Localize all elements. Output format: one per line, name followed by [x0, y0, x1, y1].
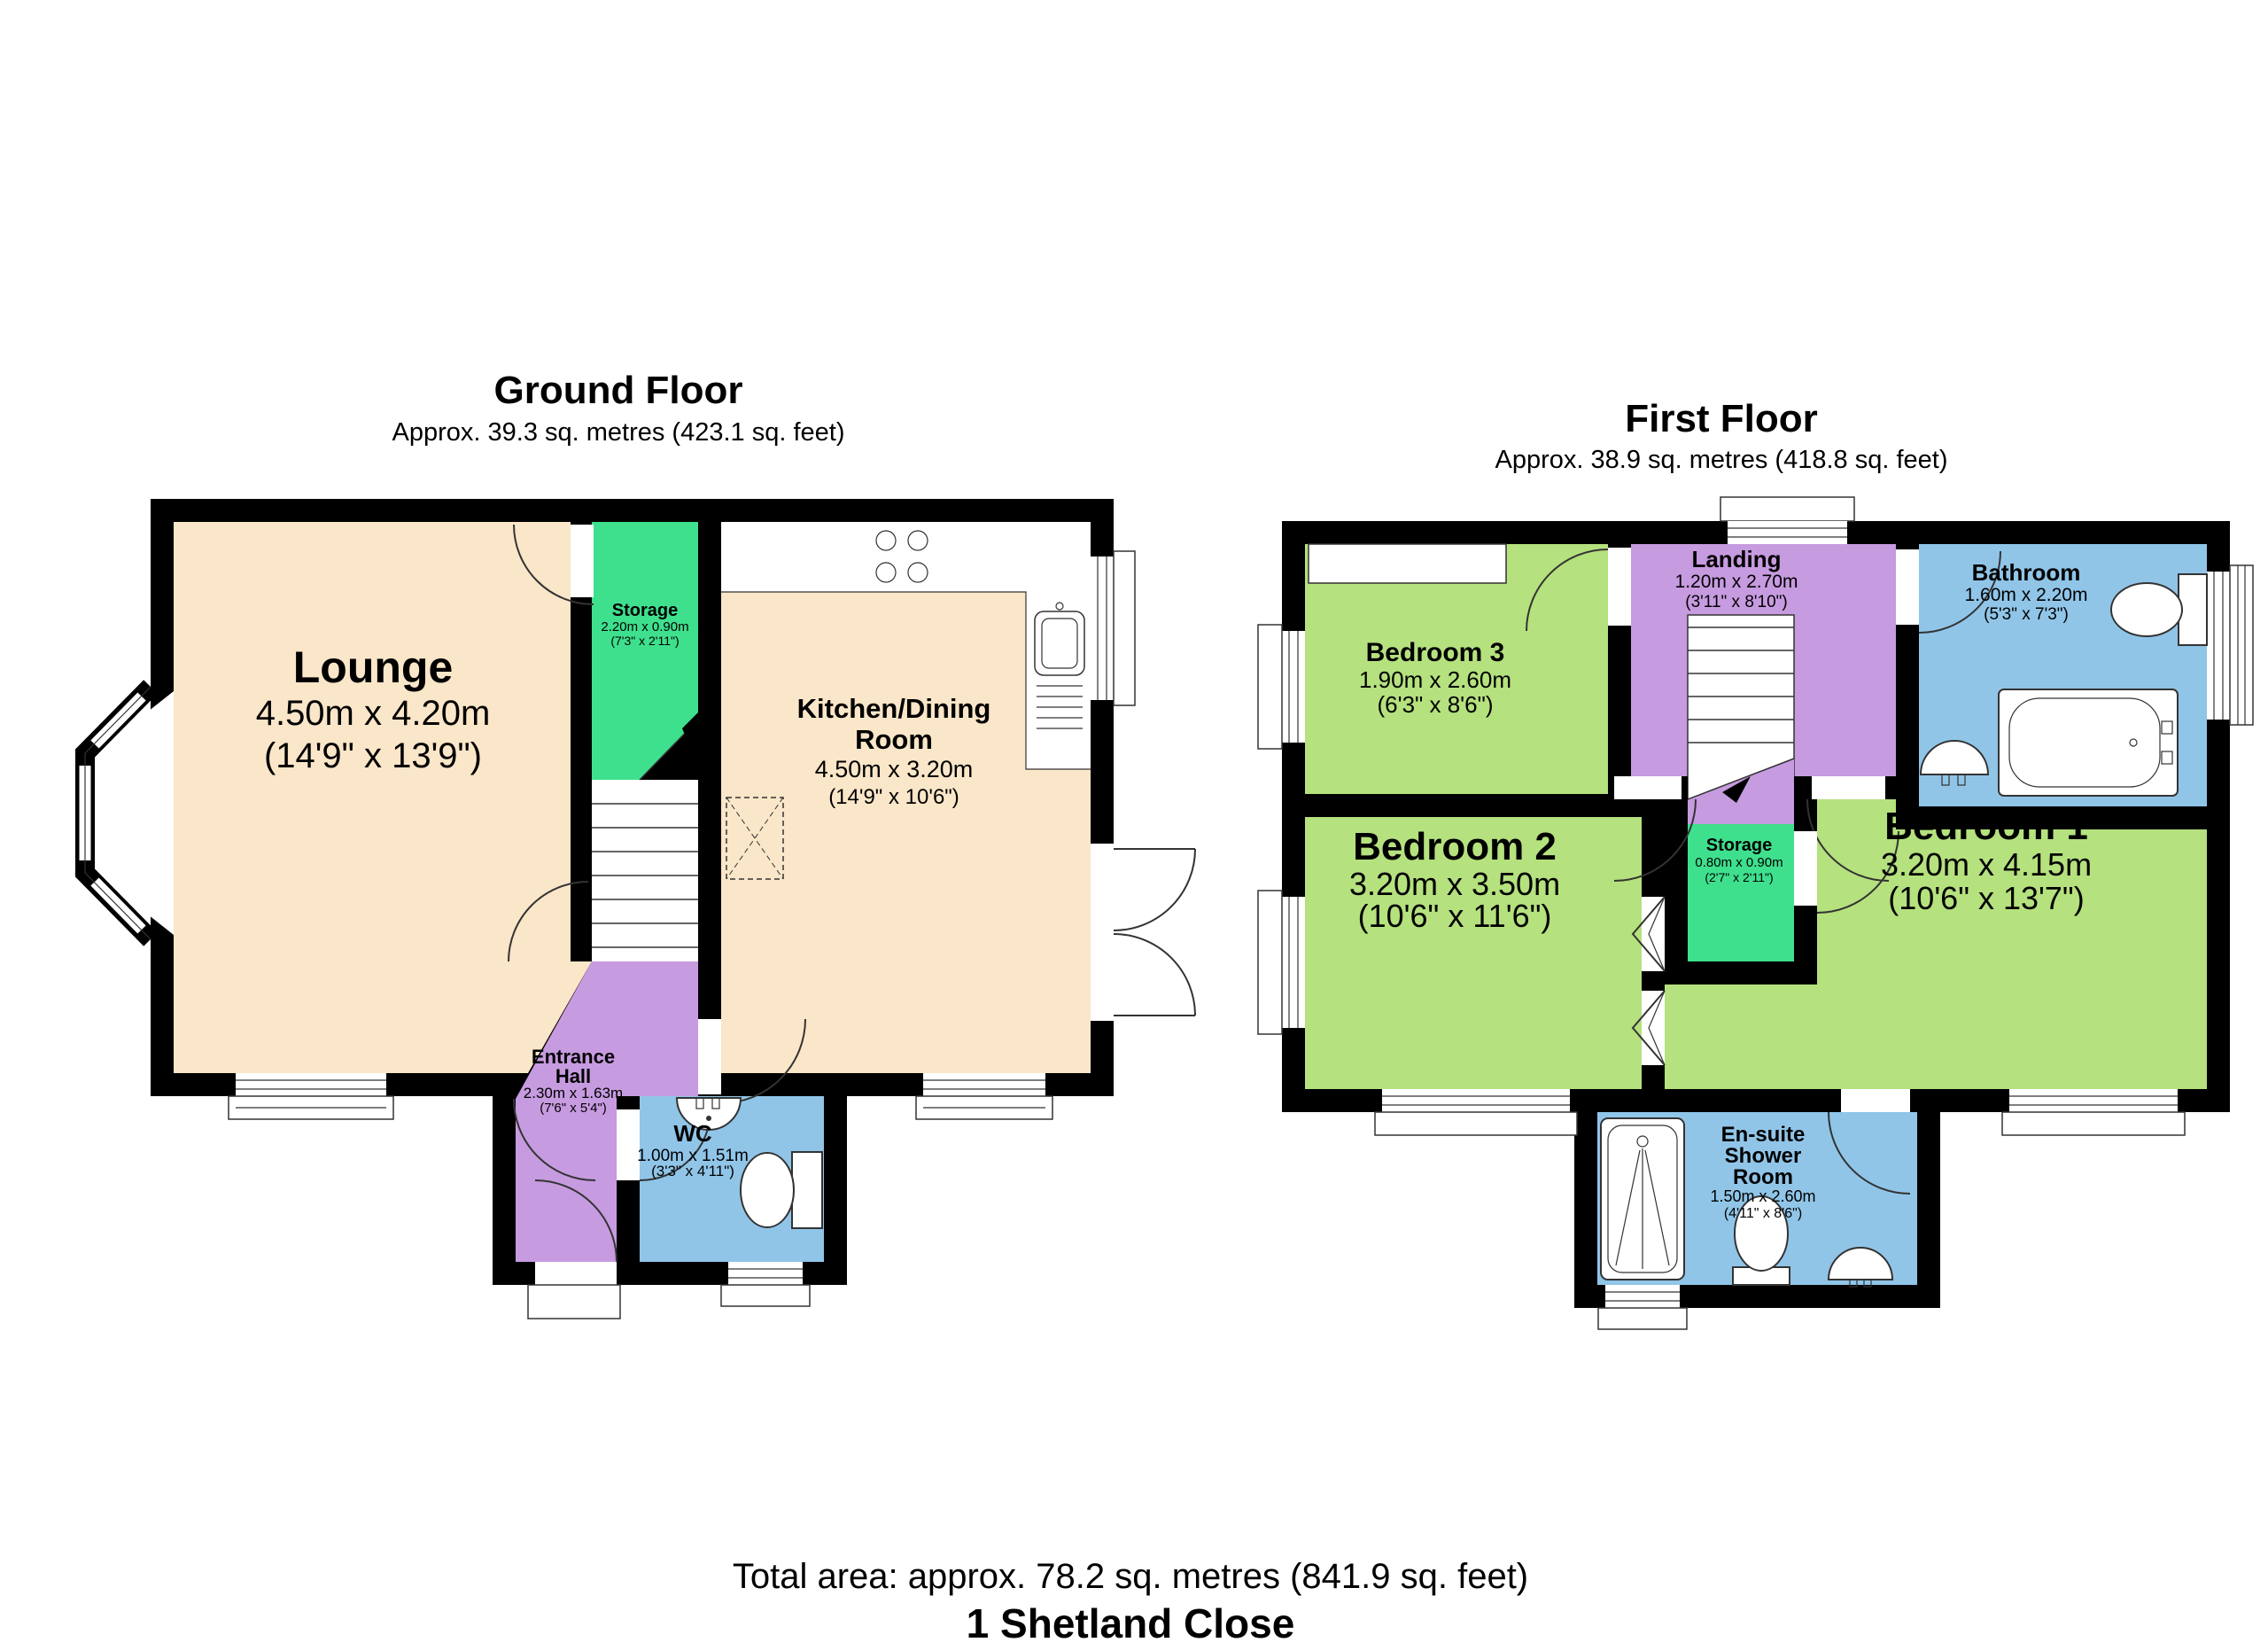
lounge-room [174, 522, 592, 1073]
room-dims-ft: (5'3" x 7'3") [1984, 605, 2069, 624]
room-name: Bathroom [1972, 559, 2081, 586]
room-dims-ft: (3'3" x 4'11") [651, 1163, 734, 1179]
bay-window [85, 687, 174, 939]
shower-icon [1601, 1118, 1684, 1280]
room-dims-ft: (3'11" x 8'10") [1685, 593, 1787, 611]
window [1720, 497, 1854, 544]
address-text: 1 Shetland Close [967, 1600, 1295, 1646]
window [2002, 1089, 2185, 1135]
ground-floor-header: Ground Floor Approx. 39.3 sq. metres (42… [392, 369, 845, 447]
room-name: Shower [1725, 1144, 1802, 1168]
ground-floor-plan: Lounge 4.50m x 4.20m (14'9" x 13'9") Sto… [85, 499, 1195, 1319]
first-floor-title: First Floor [1625, 397, 1818, 440]
window [1375, 1089, 1577, 1135]
room-name: Room [855, 724, 933, 755]
ff-stairs [1688, 615, 1794, 824]
door-gap [1614, 776, 1682, 799]
room-dims-m: 3.20m x 4.15m [1881, 846, 2092, 883]
room-dims-ft: (4'11" x 8'6") [1724, 1206, 1802, 1221]
gf-storage-label: Storage 2.20m x 0.90m (7'3" x 2'11") [601, 601, 688, 648]
window [2207, 565, 2253, 725]
door-gap [617, 1109, 640, 1180]
ff-storage-label: Storage 0.80m x 0.90m (2'7" x 2'11") [1695, 836, 1783, 884]
total-area-text: Total area: approx. 78.2 sq. metres (841… [733, 1557, 1528, 1596]
window [1598, 1285, 1687, 1329]
room-dims-m: 2.20m x 0.90m [601, 619, 688, 634]
room-dims-m: 1.60m x 2.20m [1965, 585, 2088, 605]
window [1258, 625, 1305, 749]
room-dims-ft: (10'6" x 11'6") [1358, 898, 1552, 934]
room-name: WC [673, 1120, 712, 1147]
door-gap [1841, 1089, 1910, 1112]
room-dims-m: 1.20m x 2.70m [1675, 572, 1798, 592]
room-dims-ft: (7'6" x 5'4") [540, 1101, 607, 1116]
first-floor-header: First Floor Approx. 38.9 sq. metres (418… [1495, 397, 1948, 474]
room-name: Bedroom 2 [1353, 825, 1557, 868]
footer: Total area: approx. 78.2 sq. metres (841… [733, 1557, 1528, 1646]
room-dims-ft: (14'9" x 10'6") [828, 785, 959, 809]
floorplan-canvas: Ground Floor Approx. 39.3 sq. metres (42… [0, 0, 2268, 1650]
window [916, 1073, 1052, 1119]
room-dims-ft: (6'3" x 8'6") [1378, 691, 1494, 718]
room-dims-m: 3.20m x 3.50m [1349, 866, 1560, 902]
room-name: En-suite [1721, 1123, 1806, 1147]
ground-floor-subtitle: Approx. 39.3 sq. metres (423.1 sq. feet) [392, 418, 845, 447]
room-dims-ft: (7'3" x 2'11") [610, 634, 679, 648]
bedroom3-label: Bedroom 3 1.90m x 2.60m (6'3" x 8'6") [1359, 638, 1511, 718]
ground-floor-title: Ground Floor [493, 369, 742, 412]
window [1258, 891, 1305, 1034]
landing-label: Landing 1.20m x 2.70m (3'11" x 8'10") [1675, 546, 1798, 611]
room-name: Landing [1691, 546, 1781, 572]
room-dims-m: 1.50m x 2.60m [1710, 1187, 1815, 1205]
room-name: Bedroom 3 [1366, 638, 1505, 667]
bedroom1-label: Bedroom 1 3.20m x 4.15m (10'6" x 13'7") [1881, 805, 2092, 916]
room-dims-ft: (14'9" x 13'9") [264, 736, 482, 775]
room-name: Storage [1706, 836, 1772, 855]
window [1091, 551, 1135, 705]
room-dims-m: 1.90m x 2.60m [1359, 666, 1511, 693]
bath-icon [1999, 689, 2178, 796]
door-gap [1812, 776, 1885, 799]
bedroom2-label: Bedroom 2 3.20m x 3.50m (10'6" x 11'6") [1349, 825, 1560, 934]
front-step [528, 1285, 620, 1319]
door-gap [698, 1019, 721, 1094]
door-gap [1896, 549, 1919, 625]
room-dims-ft: (10'6" x 13'7") [1888, 880, 2084, 916]
room-dims-m: 0.80m x 0.90m [1695, 855, 1783, 870]
first-floor-plan: Bedroom 3 1.90m x 2.60m (6'3" x 8'6") La… [1258, 497, 2253, 1329]
window [721, 1262, 810, 1306]
room-name: Lounge [293, 642, 454, 692]
room-name: Bedroom 1 [1884, 805, 2088, 848]
door-gap [1608, 548, 1631, 626]
room-dims-m: 4.50m x 4.20m [256, 694, 491, 733]
room-name: Room [1733, 1165, 1793, 1189]
room-dims-m: 2.30m x 1.63m [524, 1085, 623, 1101]
door-gap [1794, 831, 1817, 906]
front-door-gap [535, 1262, 617, 1285]
door-gap [571, 525, 594, 597]
room-dims-m: 4.50m x 3.20m [815, 756, 974, 782]
french-doors [1091, 844, 1195, 1021]
room-dims-ft: (2'7" x 2'11") [1705, 870, 1773, 884]
window [229, 1073, 393, 1119]
bedroom3-window-recess [1309, 544, 1506, 583]
toilet-icon [741, 1152, 822, 1228]
room-name: Storage [612, 601, 678, 620]
first-floor-subtitle: Approx. 38.9 sq. metres (418.8 sq. feet) [1495, 446, 1948, 474]
room-name: Kitchen/Dining [797, 693, 991, 724]
